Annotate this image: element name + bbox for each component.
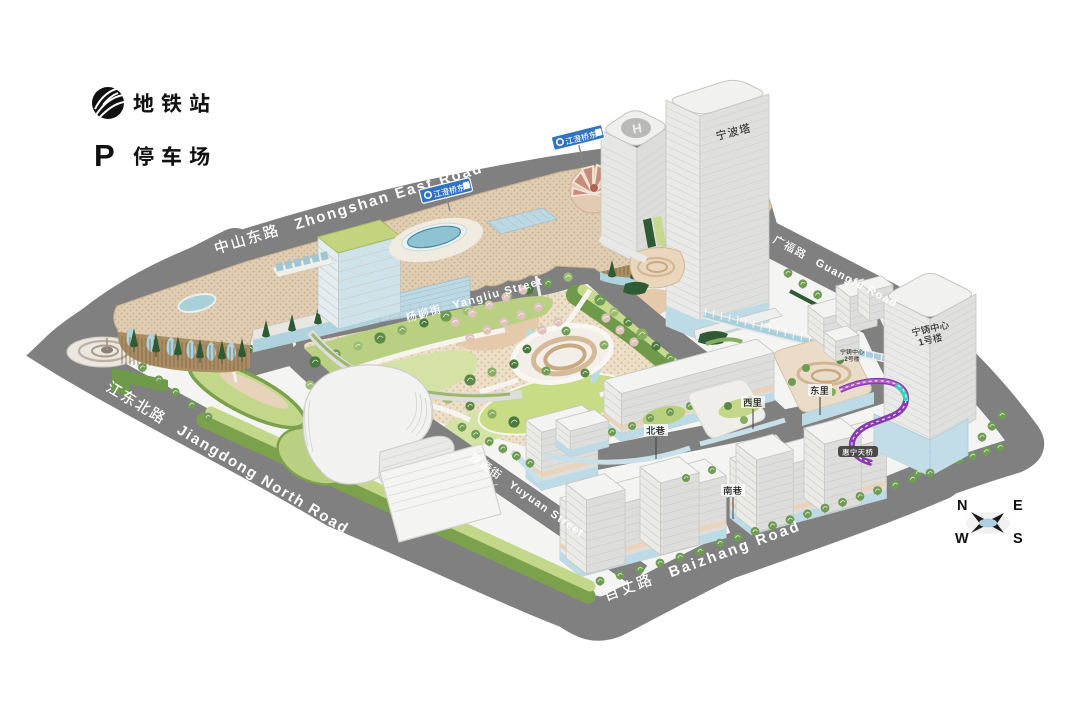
svg-text:P: P xyxy=(94,138,115,173)
svg-text:S: S xyxy=(1013,531,1023,547)
svg-text:W: W xyxy=(955,531,969,547)
svg-text:N: N xyxy=(957,498,967,514)
svg-text:E: E xyxy=(1013,498,1023,514)
